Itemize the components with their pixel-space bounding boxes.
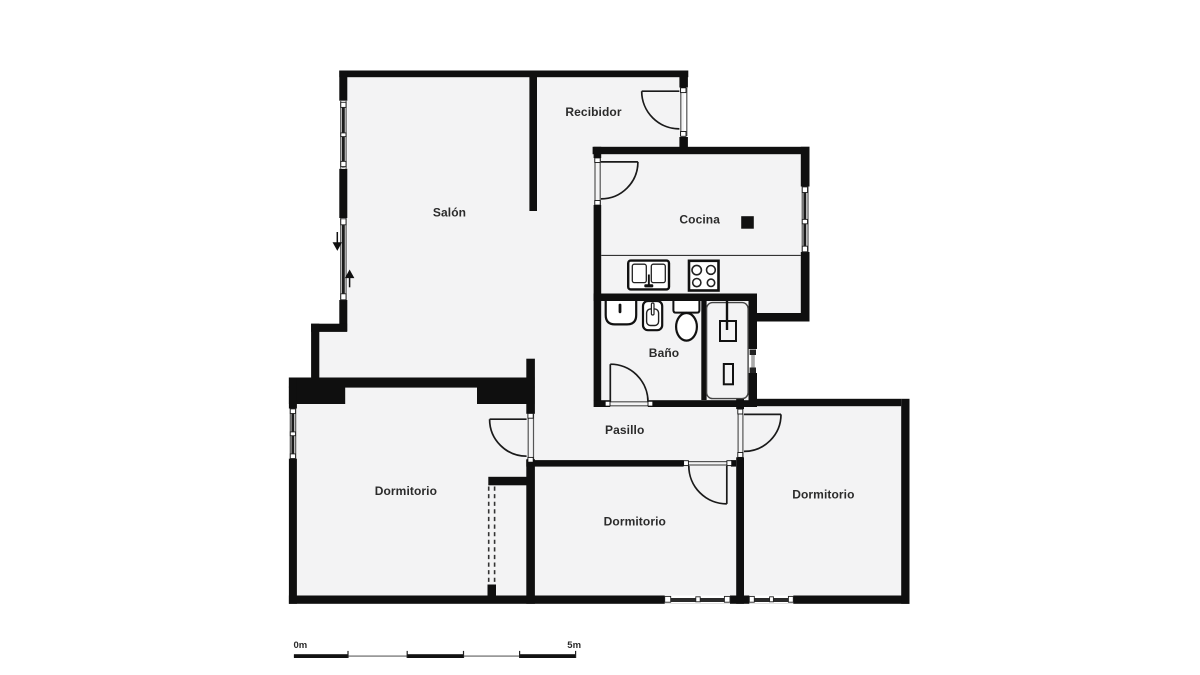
- svg-text:0m: 0m: [294, 640, 308, 651]
- svg-text:Dormitorio: Dormitorio: [375, 484, 437, 498]
- svg-text:Pasillo: Pasillo: [605, 423, 644, 437]
- svg-text:Cocina: Cocina: [679, 212, 720, 226]
- svg-text:5m: 5m: [567, 640, 581, 651]
- svg-text:Baño: Baño: [649, 346, 679, 360]
- svg-text:Salón: Salón: [433, 206, 466, 220]
- svg-text:Recibidor: Recibidor: [565, 105, 621, 119]
- svg-text:Dormitorio: Dormitorio: [604, 515, 666, 529]
- svg-text:Dormitorio: Dormitorio: [792, 488, 854, 502]
